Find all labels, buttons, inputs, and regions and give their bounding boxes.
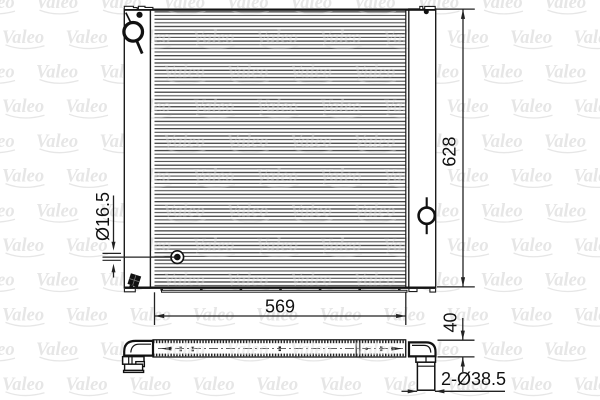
- svg-text:40: 40: [440, 312, 460, 332]
- svg-text:569: 569: [265, 296, 295, 316]
- svg-text:Ø16.5: Ø16.5: [93, 192, 113, 241]
- svg-text:2-Ø38.5: 2-Ø38.5: [441, 369, 506, 389]
- svg-text:628: 628: [440, 137, 460, 167]
